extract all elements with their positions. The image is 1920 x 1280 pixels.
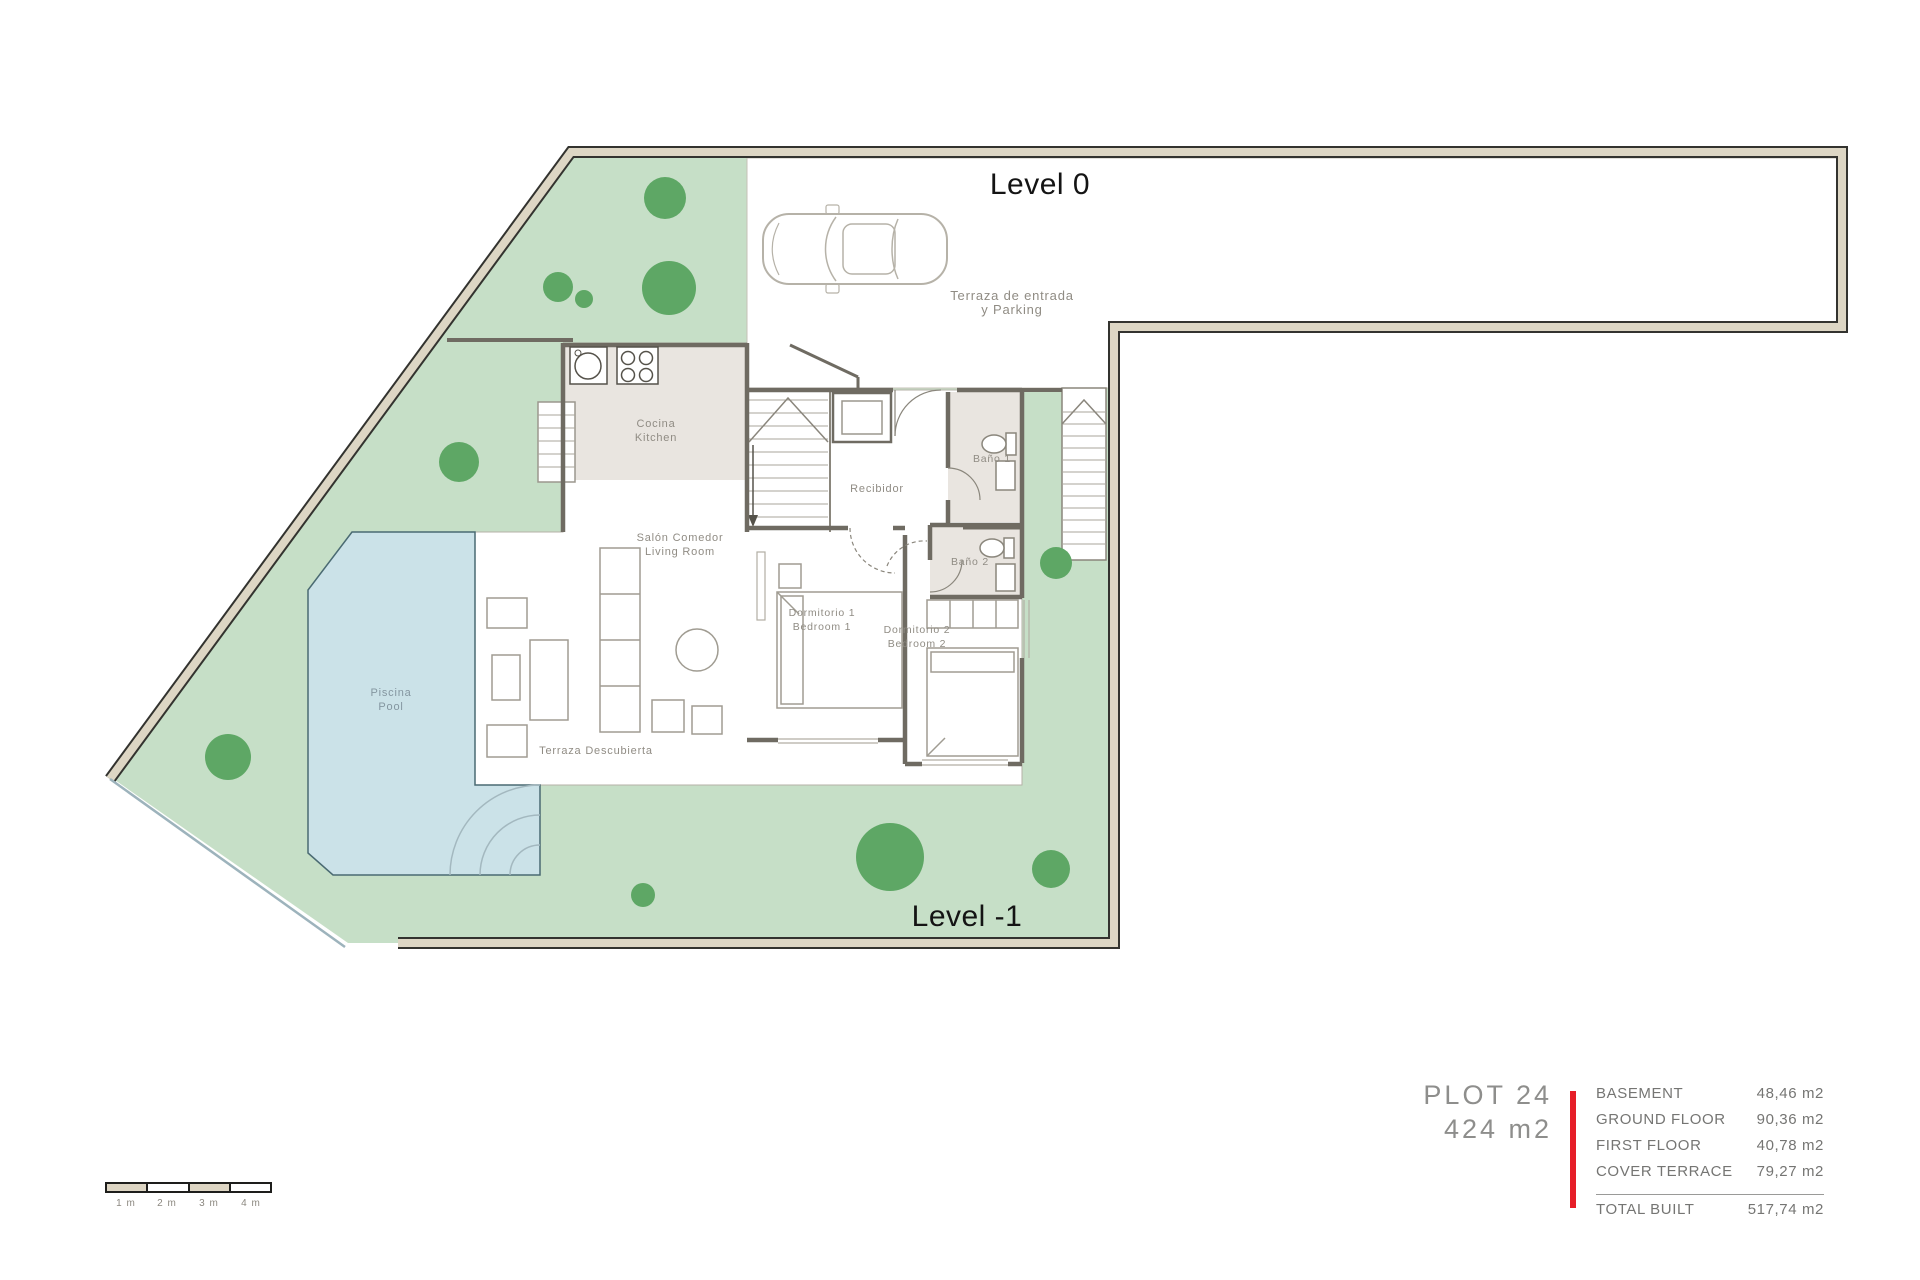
bath1-label: Baño 1 xyxy=(973,452,1011,466)
pool-label: Piscina Pool xyxy=(370,686,411,714)
row-value: 79,27 m2 xyxy=(1757,1164,1824,1190)
tree-icon xyxy=(856,823,924,891)
scale-segment xyxy=(231,1184,270,1191)
living-room-label-en: Living Room xyxy=(637,545,724,559)
level0-title: Level 0 xyxy=(990,168,1090,202)
pool-label-es: Piscina xyxy=(370,686,411,700)
garden-steps xyxy=(538,402,575,482)
open-terrace-label: Terraza Descubierta xyxy=(539,744,653,758)
pouf xyxy=(692,706,722,734)
site-plan: Level 0 Level -1 Terraza de entrada y Pa… xyxy=(0,0,1920,1280)
scale-bar: 1 m 2 m 3 m 4 m xyxy=(105,1182,272,1193)
tree-icon xyxy=(575,290,593,308)
scale-bar-segments xyxy=(105,1182,272,1193)
pool-label-en: Pool xyxy=(370,700,411,714)
elevator xyxy=(833,393,891,442)
entry-terrace-label: Terraza de entrada y Parking xyxy=(950,289,1074,317)
area-table: BASEMENT 48,46 m2 GROUND FLOOR 90,36 m2 … xyxy=(1596,1086,1824,1228)
tree-icon xyxy=(205,734,251,780)
entry-terrace-line2: y Parking xyxy=(950,303,1074,317)
row-value: 48,46 m2 xyxy=(1757,1086,1824,1112)
living-room-label-es: Salón Comedor xyxy=(637,531,724,545)
table-divider xyxy=(1596,1194,1824,1195)
bedroom1-label: Dormitorio 1 Bedroom 1 xyxy=(789,606,856,634)
scale-tick: 4 m xyxy=(241,1198,261,1209)
kitchen-sink-icon xyxy=(570,347,607,384)
scale-segment xyxy=(148,1184,189,1191)
bedroom2-label-es: Dormitorio 2 xyxy=(884,623,951,637)
coffee-table xyxy=(676,629,718,671)
kitchen-label-es: Cocina xyxy=(635,417,677,431)
total-label: TOTAL BUILT xyxy=(1596,1202,1695,1228)
bedroom1-label-en: Bedroom 1 xyxy=(789,620,856,634)
parking-area xyxy=(747,158,1840,388)
row-value: 90,36 m2 xyxy=(1757,1112,1824,1138)
plot-title: PLOT 24 xyxy=(1423,1080,1552,1111)
pouf xyxy=(652,700,684,732)
kitchen-label-en: Kitchen xyxy=(635,431,677,445)
hall-label: Recibidor xyxy=(850,482,904,496)
plot-area: 424 m2 xyxy=(1444,1114,1552,1145)
scale-tick: 3 m xyxy=(199,1198,219,1209)
living-room-label: Salón Comedor Living Room xyxy=(637,531,724,559)
tree-icon xyxy=(644,177,686,219)
tree-icon xyxy=(642,261,696,315)
legend-accent-line xyxy=(1570,1091,1576,1208)
bedroom2-label: Dormitorio 2 Bedroom 2 xyxy=(884,623,951,651)
row-value: 40,78 m2 xyxy=(1757,1138,1824,1164)
shower-bath2 xyxy=(996,564,1015,591)
row-label: GROUND FLOOR xyxy=(1596,1112,1726,1138)
table-row: COVER TERRACE 79,27 m2 xyxy=(1596,1164,1824,1190)
exterior-stairs xyxy=(1062,388,1106,560)
bedroom1-label-es: Dormitorio 1 xyxy=(789,606,856,620)
table-total-row: TOTAL BUILT 517,74 m2 xyxy=(1596,1202,1824,1228)
entry-terrace-line1: Terraza de entrada xyxy=(950,289,1074,303)
row-label: FIRST FLOOR xyxy=(1596,1138,1702,1164)
bedroom2-label-en: Bedroom 2 xyxy=(884,637,951,651)
hob-icon xyxy=(617,347,658,384)
scale-segment xyxy=(107,1184,148,1191)
scale-tick: 1 m xyxy=(116,1198,136,1209)
scale-tick: 2 m xyxy=(157,1198,177,1209)
tree-icon xyxy=(631,883,655,907)
total-value: 517,74 m2 xyxy=(1748,1202,1824,1228)
nightstand xyxy=(779,564,801,588)
tree-icon xyxy=(1040,547,1072,579)
tree-icon xyxy=(543,272,573,302)
kitchen-label: Cocina Kitchen xyxy=(635,417,677,445)
table-row: BASEMENT 48,46 m2 xyxy=(1596,1086,1824,1112)
bath2-label: Baño 2 xyxy=(951,555,989,569)
level-minus1-title: Level -1 xyxy=(912,900,1023,934)
table-row: GROUND FLOOR 90,36 m2 xyxy=(1596,1112,1824,1138)
tree-icon xyxy=(439,442,479,482)
scale-segment xyxy=(190,1184,231,1191)
table-row: FIRST FLOOR 40,78 m2 xyxy=(1596,1138,1824,1164)
row-label: BASEMENT xyxy=(1596,1086,1683,1112)
row-label: COVER TERRACE xyxy=(1596,1164,1733,1190)
tree-icon xyxy=(1032,850,1070,888)
